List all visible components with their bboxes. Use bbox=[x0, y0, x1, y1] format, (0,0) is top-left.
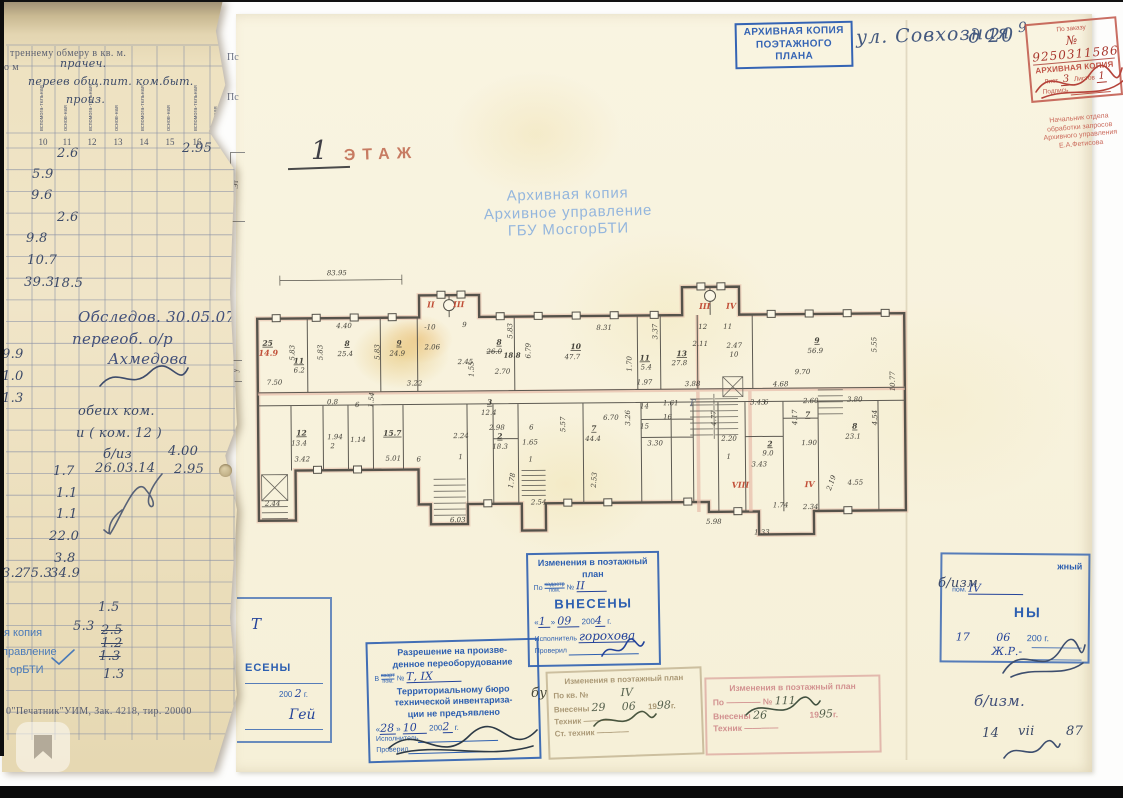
blue-print-fragment: я копия bbox=[4, 627, 42, 639]
svg-text:14: 14 bbox=[140, 137, 150, 147]
table-value: перееоб. о/р bbox=[72, 330, 173, 348]
table-value: 1.0 bbox=[2, 369, 24, 384]
plan-label: 10 bbox=[570, 342, 581, 351]
svg-text:основ-ная: основ-ная bbox=[63, 105, 69, 131]
plan-label: 2 bbox=[496, 432, 502, 441]
plan-label: 3.37 bbox=[651, 323, 659, 339]
plan-label: 2.06 bbox=[423, 343, 440, 351]
plan-label: 6 bbox=[416, 455, 421, 463]
plan-label: 4.55 bbox=[847, 479, 864, 487]
table-header-fragment: о м bbox=[4, 62, 19, 73]
table-value: 2.6 bbox=[57, 210, 79, 225]
plan-label: 1.97 bbox=[637, 378, 653, 386]
plan-label: 4.40 bbox=[335, 322, 352, 330]
permit-signature bbox=[385, 720, 545, 762]
plan-label: 56.9 bbox=[807, 347, 823, 355]
date-day: 14 bbox=[982, 726, 999, 741]
plan-label: 3.22 bbox=[407, 379, 423, 387]
plan-label: 4.77 bbox=[710, 410, 718, 427]
plan-label: 3.42 bbox=[294, 455, 310, 463]
plan-label: 9 bbox=[814, 336, 820, 345]
table-value: 9.9 bbox=[2, 347, 24, 362]
table-value: 9.6 bbox=[31, 188, 53, 203]
plan-label: 3.80 bbox=[847, 396, 863, 404]
table-value: 4.00 bbox=[168, 444, 198, 459]
print-footer: 0"Печатник"УИМ, Зак. 4218, тир. 20000 bbox=[6, 706, 192, 717]
plan-label: VIII bbox=[732, 480, 750, 490]
plan-label: 15 bbox=[640, 422, 650, 430]
plan-label: 47.7 bbox=[564, 353, 581, 361]
plan-label: 10 bbox=[730, 351, 740, 359]
plan-label: 2 bbox=[329, 442, 335, 450]
plan-label: 1.90 bbox=[801, 439, 817, 447]
plan-label: 9.0 bbox=[762, 449, 774, 457]
technician-signature bbox=[590, 708, 660, 734]
table-value: 5.9 bbox=[32, 167, 54, 182]
plan-label: 11 bbox=[723, 323, 732, 331]
table-value: 3.8 bbox=[54, 551, 76, 566]
plan-label: 1.78 bbox=[507, 472, 518, 489]
plan-label: 1.61 bbox=[663, 399, 679, 407]
signature-text: Гей bbox=[289, 707, 316, 723]
plan-label: 2.11 bbox=[691, 340, 708, 348]
plan-label: 1.54 bbox=[367, 392, 376, 408]
plan-label: 1 bbox=[458, 453, 463, 461]
signature bbox=[1000, 738, 1064, 766]
plan-label: Г bbox=[689, 399, 697, 409]
table-value: 1.5 bbox=[98, 600, 120, 615]
plan-label: 5.83 bbox=[373, 344, 381, 360]
plan-label: 8 bbox=[496, 338, 502, 347]
plan-label: 12 bbox=[296, 428, 307, 437]
plan-label: 6 bbox=[529, 423, 534, 431]
archive-watermark: Архивная копия Архивное управление ГБУ М… bbox=[467, 183, 668, 241]
plan-label: 5.55 bbox=[870, 336, 878, 352]
stamp-line: АРХИВНАЯ КОПИЯ bbox=[739, 25, 849, 40]
plan-label: 1 bbox=[726, 453, 731, 461]
table-value: 1.1 bbox=[56, 486, 78, 501]
plan-label: 7.50 bbox=[267, 379, 283, 387]
plan-label: 2.98 bbox=[488, 424, 505, 432]
plan-label: 1.70 bbox=[626, 355, 634, 371]
top-border bbox=[0, 0, 1123, 2]
address-house-number: д 20 bbox=[968, 24, 1015, 48]
plan-label: 8 bbox=[852, 422, 858, 431]
apartment-number: Т, IХ bbox=[406, 670, 461, 683]
plan-label: 1.14 bbox=[350, 436, 366, 444]
no-changes-note: б/изм. bbox=[974, 692, 1025, 710]
table-value: 1.3 bbox=[2, 391, 24, 406]
table-value: 2.95 bbox=[182, 141, 212, 156]
svg-text:основ-ная: основ-ная bbox=[114, 105, 120, 131]
plan-label: 0.8 bbox=[327, 398, 339, 406]
plan-label: 2 bbox=[766, 439, 772, 448]
plan-label: II bbox=[426, 299, 435, 309]
technician-signature bbox=[740, 695, 825, 725]
plan-label: 1.94 bbox=[327, 433, 343, 441]
plan-label: 2.44 bbox=[264, 500, 281, 508]
floor-plan: 83.95254.405.83825.45.83924.95.83-102.06… bbox=[252, 257, 915, 560]
plan-label: 7 bbox=[805, 410, 811, 419]
blue-print-fragment: правление bbox=[2, 646, 57, 658]
table-value: б/из bbox=[103, 447, 132, 462]
plan-label: 1.33 bbox=[754, 528, 770, 536]
plan-label: 9 bbox=[462, 321, 467, 329]
plan-label: 14.9 bbox=[258, 348, 278, 358]
table-value: и ( ком. 12 ) bbox=[76, 426, 162, 441]
stamp-line: ПОЭТАЖНОГО ПЛАНА bbox=[739, 37, 849, 64]
signature bbox=[94, 362, 194, 396]
plan-label: 25.4 bbox=[336, 350, 353, 358]
plan-label: -10 bbox=[424, 323, 436, 331]
red-signature bbox=[1032, 60, 1123, 106]
table-value: прачеч. bbox=[60, 57, 106, 70]
plan-label: 6.79 bbox=[524, 342, 532, 358]
date-month: vii bbox=[1018, 724, 1035, 739]
plan-label: 6 bbox=[764, 398, 769, 406]
apartment-number: II bbox=[576, 580, 606, 593]
plan-label: 2.24 bbox=[452, 432, 469, 440]
table-value: 1.7 bbox=[53, 464, 75, 479]
svg-text:вспомога-тельная: вспомога-тельная bbox=[140, 85, 146, 131]
plan-label: 14 bbox=[640, 402, 649, 410]
table-value: 2.95 bbox=[174, 462, 204, 477]
apartment-number: IV bbox=[620, 686, 633, 699]
left-form-paper: вспомога-тельнаяоснов-наявспомога-тельна… bbox=[2, 0, 237, 772]
plan-label: 9 bbox=[396, 339, 402, 348]
plan-label: 4.17 bbox=[791, 409, 799, 426]
plan-label: 2.47 bbox=[725, 342, 742, 350]
plan-label: 15.7 bbox=[383, 429, 402, 438]
table-value: 1.1 bbox=[56, 507, 78, 522]
table-value: 22.0 bbox=[49, 529, 79, 544]
plan-label: 12.4 bbox=[481, 409, 497, 417]
plan-label: 18.3 bbox=[492, 443, 508, 451]
table-value: 2.6 bbox=[57, 146, 79, 161]
table-value: 10.7 bbox=[27, 253, 57, 268]
date-year: 87 bbox=[1066, 724, 1083, 739]
plan-label: 44.4 bbox=[584, 435, 601, 443]
plan-label: 2.70 bbox=[494, 368, 511, 376]
plan-label: 8.31 bbox=[596, 324, 612, 332]
plan-label: 5.01 bbox=[385, 455, 401, 463]
svg-text:Высота: Высота bbox=[224, 111, 230, 131]
check-mark bbox=[50, 648, 78, 668]
plan-label: 3.43 bbox=[751, 460, 767, 468]
table-value: 75.3 bbox=[22, 566, 52, 581]
plan-label: 1 bbox=[528, 455, 533, 463]
left-border bbox=[0, 0, 4, 756]
svg-text:вспомога-тельная: вспомога-тельная bbox=[39, 85, 45, 131]
svg-text:10: 10 bbox=[39, 137, 49, 147]
plan-label: 6 bbox=[355, 401, 360, 409]
plan-label: 24.9 bbox=[388, 350, 405, 358]
bottom-border bbox=[0, 786, 1123, 798]
plan-label: 2.53 bbox=[590, 471, 599, 489]
plan-label: 23.1 bbox=[844, 433, 861, 441]
plan-label: IV bbox=[725, 301, 737, 311]
plan-label: 11 bbox=[294, 356, 305, 365]
plan-label: 5.4 bbox=[641, 363, 652, 371]
plan-label: IV bbox=[804, 479, 816, 489]
plan-label: 2.60 bbox=[802, 397, 819, 405]
table-value: Обследов. 30.05.07 bbox=[78, 308, 235, 326]
plan-label: 5.83 bbox=[316, 344, 324, 360]
svg-text:основ-ная: основ-ная bbox=[166, 105, 172, 131]
plan-label: III bbox=[452, 299, 465, 309]
inspector-signature bbox=[995, 635, 1090, 683]
table-value: 34.9 bbox=[50, 566, 80, 581]
officer-title: Начальник отдела обработки запросов Архи… bbox=[1033, 111, 1123, 154]
table-value: произ. bbox=[66, 93, 105, 106]
plan-label: 3.26 bbox=[624, 409, 632, 425]
floor-number: 1 bbox=[311, 136, 328, 166]
bookmark-button[interactable] bbox=[16, 722, 70, 772]
checker-signature bbox=[598, 638, 648, 664]
plan-label: 7 bbox=[591, 424, 597, 433]
plan-label: 6.2 bbox=[294, 366, 306, 374]
plan-label: 26.0 bbox=[485, 348, 502, 356]
plan-label: 1.65 bbox=[522, 438, 538, 446]
bookmark-icon bbox=[33, 734, 53, 760]
plan-label: 11 bbox=[640, 353, 651, 362]
svg-text:17: 17 bbox=[218, 137, 228, 147]
table-value: 5.3 bbox=[73, 619, 95, 634]
plan-label: 16 bbox=[663, 413, 673, 421]
partial-entered-stamp: Т ЕСЕНЫ 200 2 г. Гей bbox=[237, 597, 332, 743]
scanned-page: АРХИВНАЯ КОПИЯ ПОЭТАЖНОГО ПЛАНА ул. Совх… bbox=[0, 0, 1123, 798]
plan-label: 3.88 bbox=[685, 380, 701, 388]
plan-label: 13 bbox=[676, 349, 687, 358]
plan-label: 83.95 bbox=[327, 269, 348, 277]
plan-label: 13.4 bbox=[291, 439, 307, 447]
table-value: переев общ.пит. ком.быт. bbox=[28, 75, 194, 88]
table-value: 1.3 bbox=[103, 667, 125, 682]
plan-label: 2.54 bbox=[530, 498, 547, 506]
plan-label: 2.19 bbox=[825, 474, 838, 493]
table-value: 18.5 bbox=[53, 276, 83, 291]
plan-label: 6.70 bbox=[603, 414, 619, 422]
paper-hole bbox=[219, 464, 232, 477]
plan-label: 4.68 bbox=[772, 380, 789, 388]
plan-label: 1.74 bbox=[773, 501, 789, 509]
plan-label: 8 bbox=[344, 339, 350, 348]
svg-text:15: 15 bbox=[166, 137, 176, 147]
svg-text:12: 12 bbox=[88, 137, 97, 147]
table-value: 3.2 bbox=[2, 566, 24, 581]
plan-label: 2.34 bbox=[802, 503, 819, 511]
svg-text:вспомога-тельная: вспомога-тельная bbox=[193, 85, 199, 131]
plan-label: 9.70 bbox=[795, 368, 811, 376]
blue-print-fragment: орБТИ bbox=[10, 664, 44, 676]
plan-label: 12 bbox=[698, 323, 708, 331]
floor-word: ЭТАЖ bbox=[344, 145, 419, 166]
plan-label: 5.98 bbox=[706, 518, 722, 526]
plan-label: 18.8 bbox=[503, 351, 520, 360]
no-changes-note: б/изм bbox=[938, 576, 978, 591]
plan-label: 4.54 bbox=[871, 410, 879, 427]
archival-copy-stamp: АРХИВНАЯ КОПИЯ ПОЭТАЖНОГО ПЛАНА bbox=[735, 21, 854, 69]
plan-label: 2.20 bbox=[720, 435, 737, 443]
table-value: 1.3 bbox=[99, 649, 121, 664]
table-value: 39.3 bbox=[24, 275, 54, 290]
plan-label: III bbox=[698, 301, 711, 311]
table-value: обеих ком. bbox=[78, 404, 155, 419]
plan-label: 27.8 bbox=[671, 359, 688, 367]
plan-label: 6.03 bbox=[450, 516, 466, 524]
plan-label: 10.77 bbox=[889, 371, 897, 392]
plan-label: 3.30 bbox=[647, 439, 663, 447]
plan-label: 5.57 bbox=[559, 416, 567, 432]
margin-note: бу bbox=[531, 686, 547, 701]
plan-label: 5.83 bbox=[506, 322, 514, 338]
plan-label: 1.55 bbox=[468, 361, 476, 377]
plan-label: 25 bbox=[261, 339, 273, 348]
plan-label: 3 bbox=[487, 398, 492, 407]
signature-flourish bbox=[90, 468, 175, 544]
svg-text:13: 13 bbox=[114, 137, 124, 147]
svg-text:Полезная: Полезная bbox=[213, 106, 219, 131]
table-value: 9.8 bbox=[26, 231, 48, 246]
